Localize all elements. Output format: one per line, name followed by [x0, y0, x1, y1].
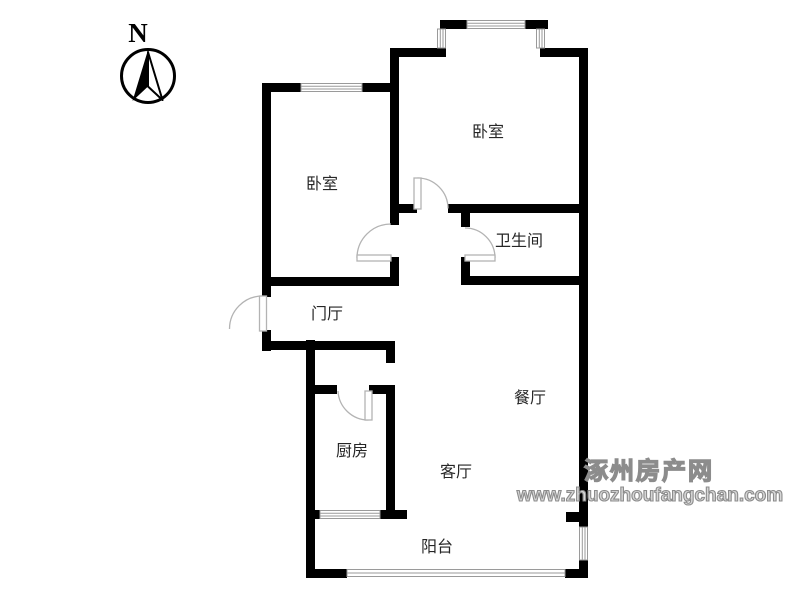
- wall-segment: [386, 385, 395, 519]
- door-entrance: [230, 296, 267, 331]
- wall-segment: [262, 341, 395, 350]
- wall-segment: [262, 277, 397, 286]
- wall-segment: [448, 204, 579, 213]
- wall-segment: [306, 510, 320, 519]
- wall-segment: [525, 20, 548, 29]
- wall-segment: [566, 512, 579, 522]
- floorplan-page: N: [0, 0, 800, 600]
- room-label-entrance-hall: 门厅: [311, 305, 343, 323]
- wall-segment: [565, 569, 588, 578]
- north-label: N: [128, 18, 148, 48]
- wall-segment: [390, 48, 399, 225]
- window-balcony-side: [580, 527, 588, 560]
- room-label-balcony: 阳台: [421, 538, 453, 556]
- north-arrow-half-icon: [148, 52, 163, 100]
- watermark: 涿州房产网 www.zhuozhoufangchan.com: [516, 457, 783, 506]
- wall-segment: [362, 83, 390, 92]
- wall-segment: [579, 48, 588, 527]
- wall-segment: [306, 340, 315, 578]
- room-label-bathroom: 卫生间: [495, 232, 543, 250]
- window-bay-connector-left: [438, 29, 446, 48]
- wall-segment: [461, 213, 470, 227]
- wall-segment: [461, 276, 579, 285]
- window-balcony-front: [347, 570, 565, 577]
- wall-segment: [262, 83, 301, 92]
- wall-segment: [386, 350, 395, 363]
- door-bedroom-top: [414, 178, 448, 209]
- door-kitchen: [338, 391, 372, 420]
- room-label-kitchen: 厨房: [336, 442, 368, 460]
- door-bedroom-left: [357, 224, 391, 261]
- room-label-dining: 餐厅: [514, 389, 546, 407]
- room-labels: 卧室 卧室 卫生间 门厅 餐厅 厨房 客厅 阳台: [306, 123, 546, 556]
- room-label-bedroom-top: 卧室: [472, 123, 504, 141]
- wall-segment: [262, 83, 271, 297]
- window-bay: [467, 21, 525, 29]
- wall-segment: [380, 510, 407, 519]
- wall-segment: [262, 330, 271, 351]
- window-kitchen: [320, 511, 380, 519]
- floorplan-canvas: N: [0, 0, 800, 600]
- wall-segment: [390, 204, 417, 213]
- watermark-site-url: www.zhuozhoufangchan.com: [516, 485, 783, 506]
- window-bedroom-left: [301, 84, 362, 92]
- window-bay-connector-right: [537, 29, 545, 48]
- watermark-site-name: 涿州房产网: [584, 457, 714, 485]
- north-indicator: N: [122, 18, 175, 103]
- wall-segment: [440, 20, 467, 29]
- door-bathroom: [465, 228, 495, 261]
- wall-segment: [306, 385, 337, 394]
- room-label-living: 客厅: [440, 463, 472, 481]
- room-label-bedroom-left: 卧室: [306, 175, 338, 193]
